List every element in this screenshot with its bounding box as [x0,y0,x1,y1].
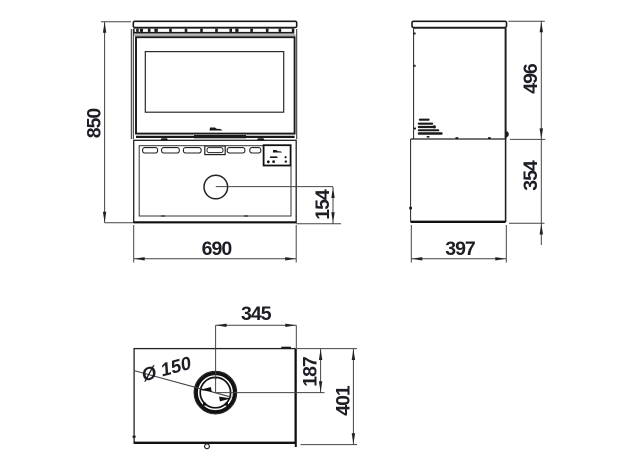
svg-text:354: 354 [520,160,542,191]
svg-text:345: 345 [241,303,272,325]
svg-text:187: 187 [299,357,321,387]
svg-text:397: 397 [445,238,475,260]
svg-text:154: 154 [312,189,334,220]
svg-text:496: 496 [520,63,542,94]
svg-text:690: 690 [202,238,233,260]
svg-text:401: 401 [332,385,354,416]
svg-text:850: 850 [84,108,106,139]
